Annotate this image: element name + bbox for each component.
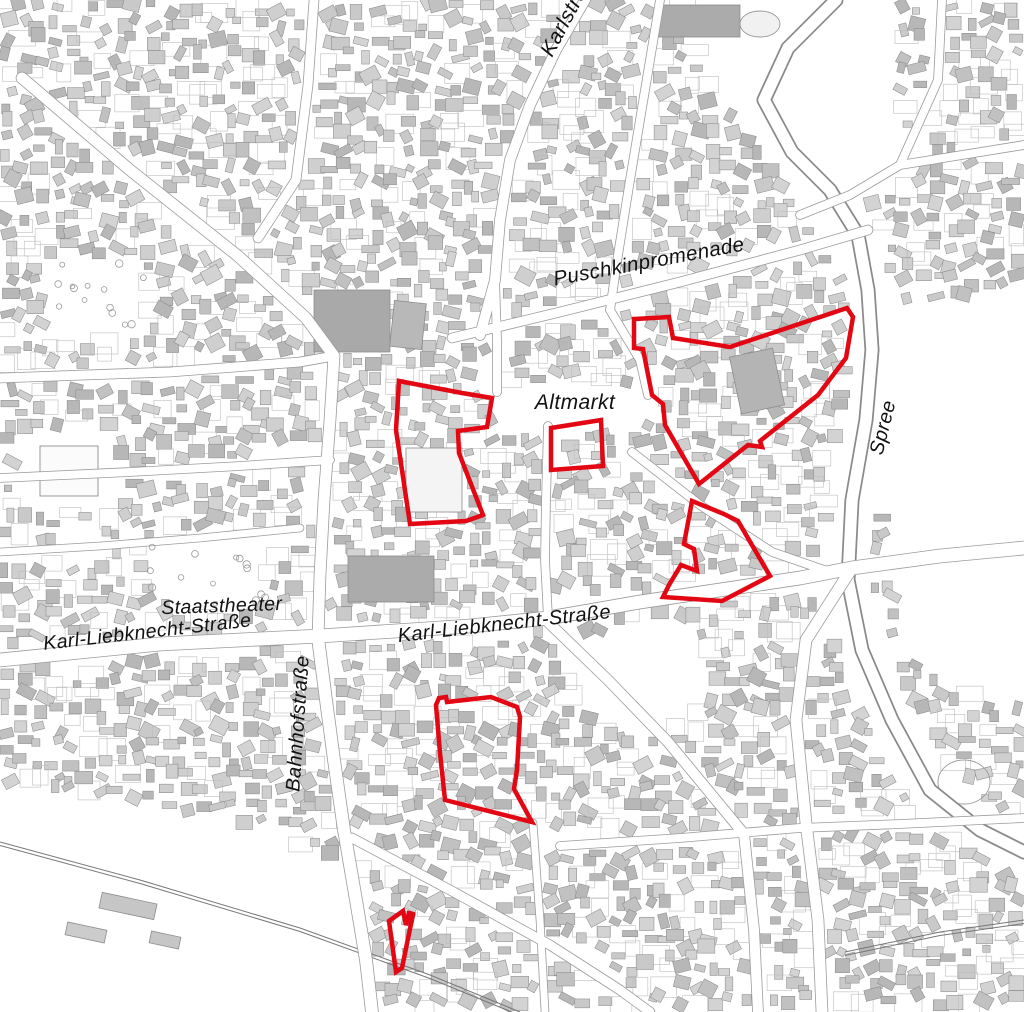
tree-symbol bbox=[60, 262, 65, 267]
tree-symbol bbox=[211, 581, 216, 586]
north-hall bbox=[655, 5, 740, 37]
goethepark-pond bbox=[740, 11, 780, 37]
department-store bbox=[348, 556, 434, 602]
barracks-3 bbox=[149, 931, 181, 949]
barracks-2 bbox=[65, 922, 107, 943]
tree-symbol bbox=[128, 321, 135, 328]
tree-symbol bbox=[122, 322, 127, 327]
spremberger-strasse bbox=[545, 426, 548, 618]
tree-symbol bbox=[109, 310, 116, 317]
tree-symbol bbox=[140, 275, 146, 281]
stadium-annex bbox=[390, 300, 427, 349]
altmarkt-north-link bbox=[495, 280, 497, 392]
tree-symbol bbox=[82, 298, 87, 303]
city-map-svg: KarlstraßePuschkinpromenadeAltmarktSpree… bbox=[0, 0, 1024, 1012]
altmarkt-label: Altmarkt bbox=[533, 391, 616, 414]
city-map: KarlstraßePuschkinpromenadeAltmarktSpree… bbox=[0, 0, 1024, 1012]
barracks-1 bbox=[99, 892, 157, 919]
tree-symbol bbox=[85, 283, 90, 288]
tree-symbol bbox=[147, 568, 153, 574]
east-ring bbox=[796, 568, 852, 1012]
tree-symbol bbox=[101, 287, 107, 293]
tree-symbol bbox=[178, 575, 184, 581]
tree-symbol bbox=[192, 550, 199, 557]
tree-symbol bbox=[56, 304, 61, 309]
galeria-block bbox=[406, 448, 462, 512]
tree-symbol bbox=[115, 260, 123, 268]
tree-symbol bbox=[236, 555, 243, 562]
tree-symbol bbox=[55, 281, 62, 288]
